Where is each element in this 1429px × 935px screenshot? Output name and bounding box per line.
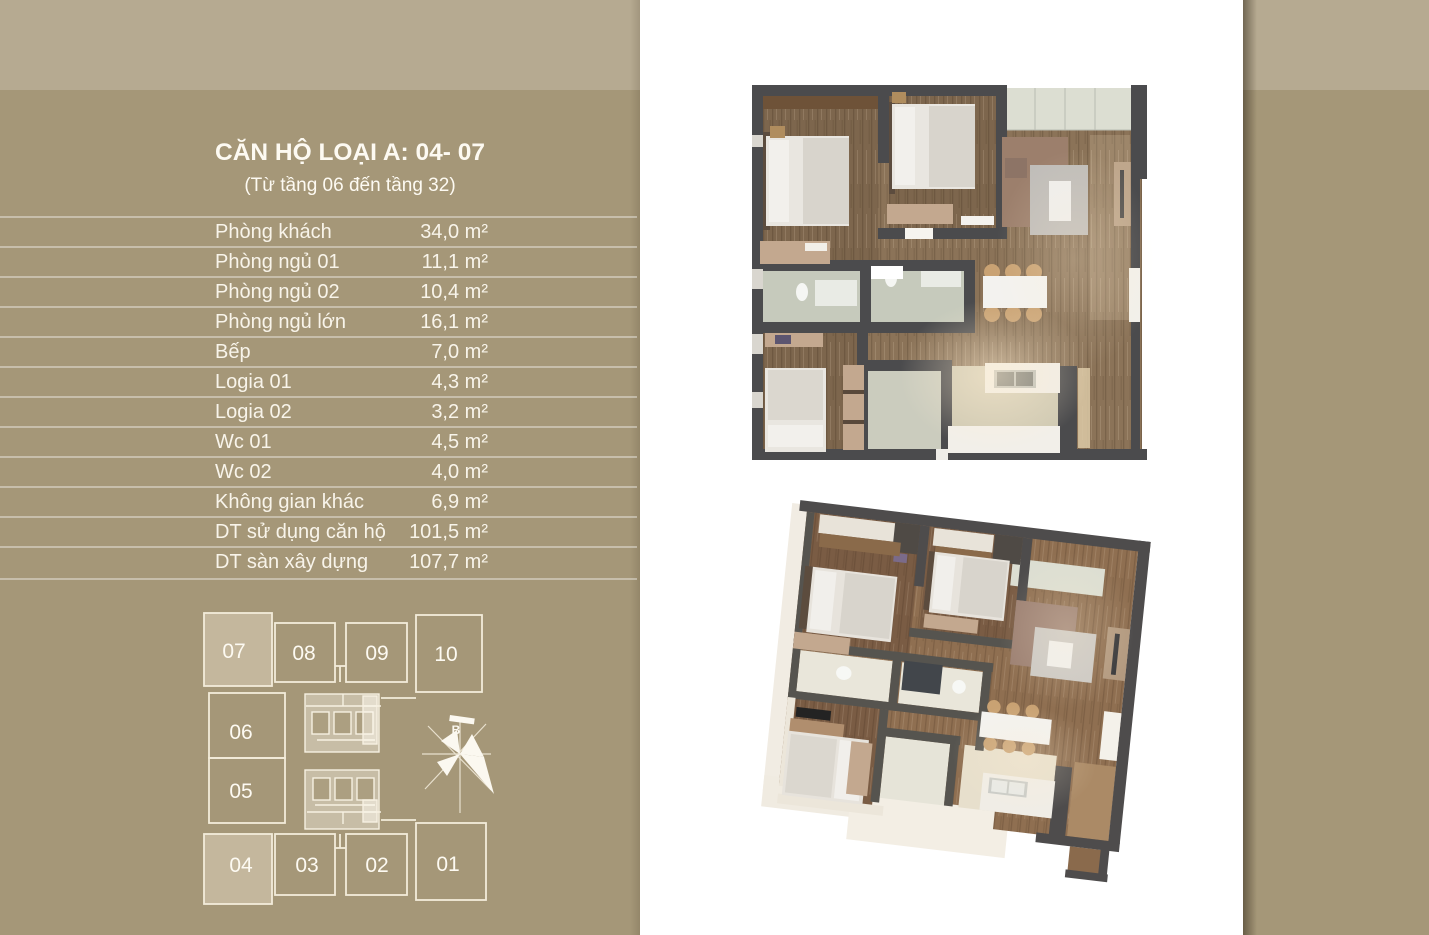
svg-text:03: 03 xyxy=(295,854,318,877)
svg-text:09: 09 xyxy=(365,642,388,665)
svg-text:02: 02 xyxy=(365,854,388,877)
svg-text:08: 08 xyxy=(292,642,315,665)
svg-text:04: 04 xyxy=(229,854,253,877)
svg-text:01: 01 xyxy=(436,853,459,876)
svg-text:06: 06 xyxy=(229,721,252,744)
svg-text:10: 10 xyxy=(434,643,457,666)
svg-text:07: 07 xyxy=(222,640,245,663)
svg-text:B: B xyxy=(452,723,461,737)
svg-text:05: 05 xyxy=(229,780,252,803)
